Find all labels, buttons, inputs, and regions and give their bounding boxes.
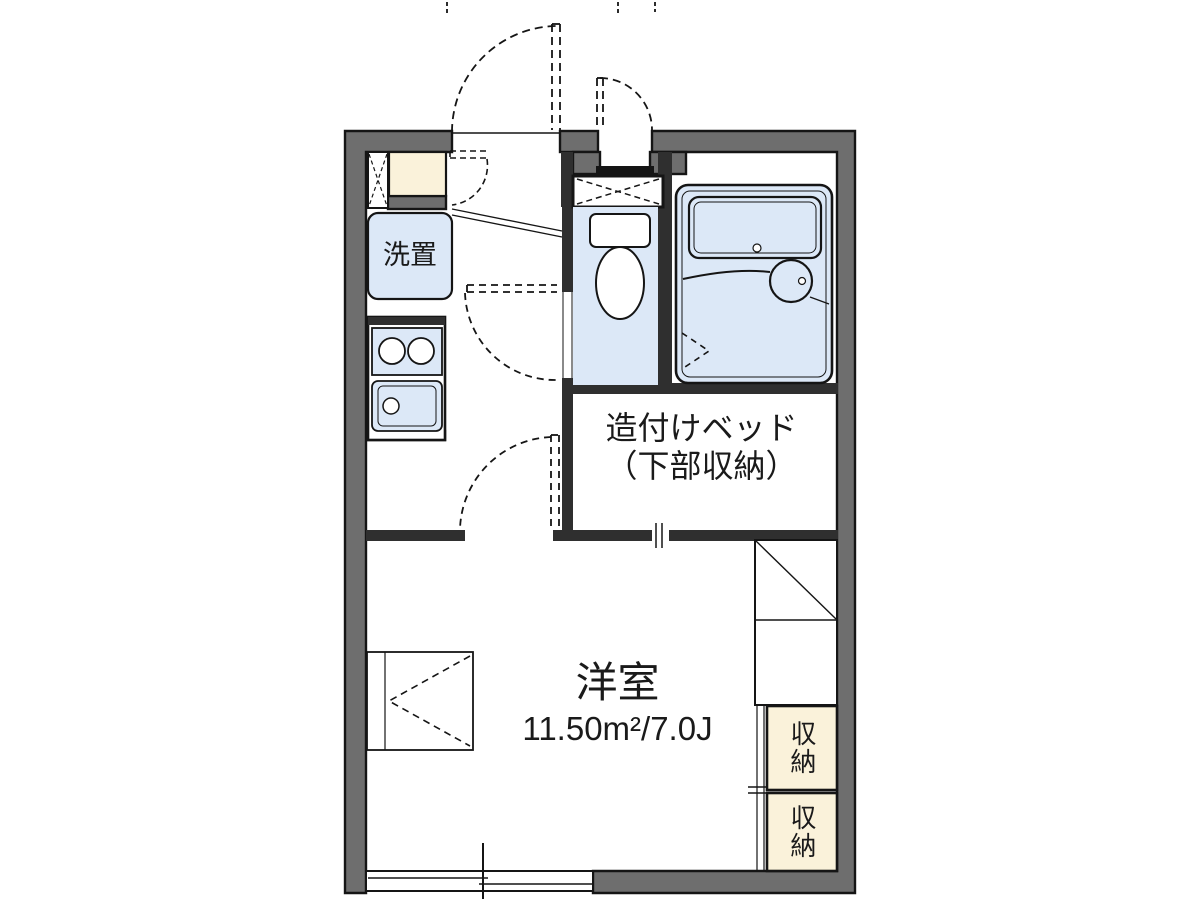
kitchen-unit	[368, 317, 445, 440]
main-room-name: 洋室	[435, 658, 800, 708]
pipe-space-icon	[368, 152, 388, 208]
sliding-window-icon	[366, 843, 593, 899]
wall-junction-ticks	[652, 523, 669, 548]
shoe-cabinet-icon	[389, 152, 446, 196]
floor-plan-canvas: 洗置 造付けベッド （下部収納） 洋室 11.50m²/7.0J 収納 収納	[0, 0, 1200, 912]
built-in-bed-label-line1: 造付けベッド	[565, 410, 838, 448]
washer-space-label: 洗置	[368, 213, 452, 299]
built-in-bed-label: 造付けベッド （下部収納）	[565, 410, 838, 486]
storage-top-label: 収納	[767, 706, 836, 790]
entrance-storage-icon	[573, 176, 663, 207]
storage-bottom-label: 収納	[767, 793, 836, 871]
bathtub-icon	[689, 197, 821, 258]
washbasin-icon	[770, 260, 812, 302]
entrance-step-line	[452, 209, 562, 237]
toilet-door-swing	[465, 285, 557, 380]
bathroom	[676, 185, 832, 383]
main-room-area: 11.50m²/7.0J	[435, 710, 800, 749]
built-in-bed-label-line2: （下部収納）	[565, 448, 838, 486]
shoe-cabinet-door-swing	[450, 151, 487, 205]
kitchen-sink-icon	[372, 381, 442, 431]
main-room-door-swing	[460, 435, 559, 529]
entrance-recess-rim	[596, 166, 654, 175]
main-room-label: 洋室 11.50m²/7.0J	[435, 658, 800, 748]
entrance-door-icon	[447, 2, 655, 132]
kitchen-stove-icon	[372, 328, 442, 375]
toilet-room	[563, 207, 658, 385]
